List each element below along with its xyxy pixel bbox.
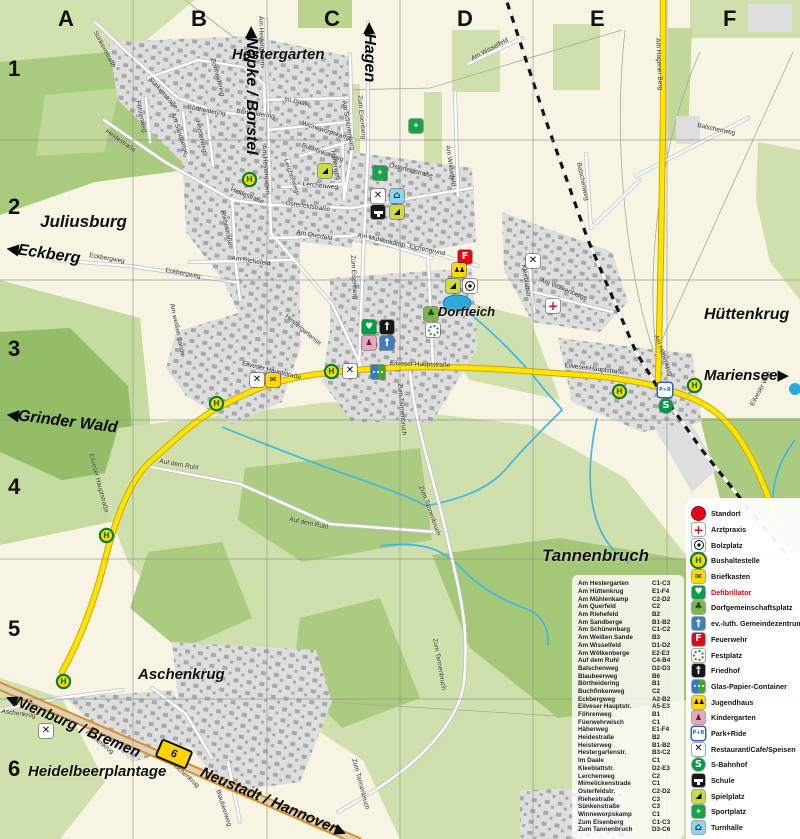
street-index-grid-ref: B1-B2 [652,742,680,749]
street-index-grid-ref: B1-B2 [652,619,680,626]
street-index-grid-ref: C2-D2 [652,596,680,603]
restaurant-icon: ✕ [343,364,357,378]
street-index-name: Am Mühlenkamp [578,596,652,603]
legend-item: FFeuerwehr [692,632,800,648]
street-index-name: Am Schünenbarg [578,626,652,633]
legend-item: HBushaltestelle [692,553,800,569]
street-label: Osterfeldstraße [285,200,330,213]
legend-item: ◢Spielplatz [692,788,800,804]
grid-row-label: 5 [8,616,20,642]
direction-sign-label: Nöpke / Borstel [243,37,260,154]
street-index-name: Heidestraße [578,734,652,741]
grid-column-label: B [191,6,207,32]
street-label: Blaubeerweg [214,789,232,827]
legend-item-label: Turnhalle [711,823,743,832]
street-index-name: Am Wölkenberge [578,650,652,657]
street-index-row: BlaubeerwegB6 [578,672,680,680]
briefkasten-icon: ✉ [266,373,280,387]
street-label: Am Riehefeld [231,255,271,267]
bolzplatz-glyph [694,540,704,550]
glas-container-glyph [698,685,700,687]
street-label: Sünkenstraße [147,76,179,111]
street-index-grid-ref: A5-E3 [652,703,680,710]
street-index-name: Auf dem Ruhl [578,657,652,664]
street-label: Am weißen Sande [168,303,186,356]
street-index-row: Am QuerfeldC2 [578,603,680,611]
street-index-grid-ref: C3 [652,796,680,803]
street-label: Eilveser Hauptstraße [390,360,451,369]
street-index-grid-ref: A2-B2 [652,696,680,703]
sportplatz-icon: ✦ [409,119,423,133]
legend-item-label: Sportplatz [711,807,746,816]
arztpraxis-icon: + [692,523,705,536]
street-index-row: Am WisselfeldD1-D2 [578,642,680,650]
legend-item-label: Friedhof [711,666,740,675]
bushaltestelle-icon: H [244,174,255,185]
street-index-grid-ref: B3 [652,634,680,641]
place-label: Dorfteich [438,304,495,319]
grid-column-label: C [324,6,340,32]
grid-row-label: 4 [8,474,20,500]
street-index-name: Am Hüttenkrug [578,588,652,595]
street-label: Am Wisselfeld [444,145,457,187]
street-label: Heidestraße [229,186,264,206]
street-index-name: Zum Tannenbruch [578,826,652,833]
friedhof-icon: † [380,320,394,334]
grid-row-label: 6 [8,756,20,782]
restaurant-icon: ✕ [692,743,705,756]
gemeindezentrum-icon: † [380,336,394,350]
street-index-name: Blaubeerweg [578,673,652,680]
street-index-name: Balschenweg [578,665,652,672]
street-label: Zum Eisenberg [356,95,367,140]
street-index-row: Am MühlenkampC2-D2 [578,595,680,603]
legend-panel: Standort+ArztpraxisBolzplatzHBushalteste… [686,498,800,839]
turnhalle-icon: ⌂ [692,821,705,834]
legend-item: ⌂Turnhalle [692,820,800,836]
grid-column-label: E [590,6,605,32]
bushaltestelle-icon: H [211,398,222,409]
legend-item-label: S-Bahnhof [711,760,747,769]
street-index-grid-ref: B3-C2 [652,749,680,756]
legend-item-label: Restaurant/Cafe/Speisen [711,745,796,754]
bushaltestelle-icon: H [614,386,625,397]
street-index-name: Lerchenweg [578,773,652,780]
street-index-grid-ref: C1-C3 [652,580,680,587]
festplatz-glyph [428,325,439,336]
street-index-grid-ref: B6 [652,673,680,680]
legend-item: SS-Bahnhof [692,757,800,773]
restaurant-icon: ✕ [39,724,53,738]
restaurant-icon: ✕ [250,373,264,387]
street-index-grid-ref: D2-D3 [652,665,680,672]
street-label: Am Mühlenkamp [357,232,406,249]
street-index-row: Am Weißen SandeB3 [578,634,680,642]
sportplatz-icon: ✦ [373,166,387,180]
gemeindezentrum-icon: † [692,617,705,630]
street-index-grid-ref: C4-B4 [652,657,680,664]
street-index-name: Sünkenstraße [578,803,652,810]
spielplatz-icon: ◢ [446,279,460,293]
bushaltestelle-icon: H [692,554,705,567]
bushaltestelle-icon: H [101,530,112,541]
street-index-grid-ref: C2 [652,773,680,780]
street-index-grid-ref: E1-F4 [652,588,680,595]
street-index-grid-ref: C1-C2 [652,626,680,633]
dorfgemeinschaftsplatz-icon: ♣ [692,601,705,614]
street-index-row: FüerwehrwischC1 [578,718,680,726]
direction-sign-label: Grinder Wald [17,407,118,436]
street-index-name: Riehestraße [578,796,652,803]
s-bahnhof-icon: S [659,399,673,413]
legend-item-label: Arztpraxis [711,525,746,534]
direction-sign-label: Eckberg [17,242,82,268]
street-index-name: Eilveser Hauptstr. [578,703,652,710]
street-index-row: BuchfinkenwegC2 [578,688,680,696]
legend-item-label: Festplatz [711,651,742,660]
street-index-row: Eilveser Hauptstr.A5-E3 [578,703,680,711]
glas-container-icon [371,365,385,379]
feuerwehr-icon: F [458,250,472,264]
bushaltestelle-icon: H [689,380,700,391]
schule-glyph [374,211,383,214]
street-index-grid-ref: D2-E3 [652,765,680,772]
arztpraxis-icon: + [546,299,560,313]
spielplatz-icon: ◢ [318,164,332,178]
direction-sign: ◀Hagen [360,22,380,82]
street-label: Auf dem Ruhl [289,516,329,531]
schule-icon [371,205,385,219]
legend-item-label: Park+Ride [711,729,746,738]
spielplatz-icon: ◢ [390,205,404,219]
street-index-grid-ref: C1 [652,780,680,787]
direction-sign: ◀Grinder Wald [6,404,119,437]
legend-item-label: ev.-luth. Gemeindezentrum [711,619,800,628]
street-index-row: Osterfeldstr.C2-D2 [578,788,680,796]
street-index-grid-ref: C3 [652,803,680,810]
street-label: Zum Tannenbruch [431,638,447,691]
street-index-name: Füerwehrwisch [578,719,652,726]
legend-item-label: Kindergarten [711,713,756,722]
street-index-grid-ref: D3-C6 [652,826,680,833]
street-index-row: Am SchünenbargC1-C2 [578,626,680,634]
street-index-grid-ref: C2 [652,603,680,610]
street-label: Eilveser Hauptstraße [564,362,625,376]
street-label: Balschenweg [575,162,590,201]
legend-item-label: Spielplatz [711,792,745,801]
street-index-grid-ref: C1 [652,719,680,726]
street-label: Am Schünenbarg [340,100,356,151]
street-label: Auf dem Ruhl [159,458,199,472]
legend-item: †ev.-luth. Gemeindezentrum [692,616,800,632]
street-index-grid-ref: B1 [652,680,680,687]
schule-glyph [694,779,703,782]
street-index-row: Am HüttenkrugE1-F4 [578,588,680,596]
jugendhaus-icon: ♟♟ [452,263,466,277]
legend-item: †Friedhof [692,663,800,679]
legend-item: ♣Dorfgemeinschaftsplatz [692,600,800,616]
dorfgemeinschaftsplatz-icon: ♣ [424,307,438,321]
grid-column-label: A [58,6,74,32]
place-label: Hüttenkrug [704,306,789,324]
street-index-row: Zum TannenbruchD3-C6 [578,826,680,834]
street-label: Eckbergweg [89,252,125,265]
street-label: Lerchenweg [302,181,338,191]
grid-row-label: 3 [8,336,20,362]
direction-sign: ◀Eckberg [5,238,82,268]
street-index-row: Im DaaleC1 [578,757,680,765]
direction-sign: ◀Nöpke / Borstel [242,26,262,155]
street-index-row: FöhrenwegB1 [578,711,680,719]
jugendhaus-icon: ♟♟ [692,696,705,709]
street-label: Am Wisselfeld [470,37,510,63]
street-index-grid-ref: E2-E3 [652,650,680,657]
briefkasten-icon: ✉ [692,570,705,583]
legend-item-label: Defibrillator [711,588,751,597]
legend-item: ♟Kindergarten [692,710,800,726]
street-index-name: Kleeblattstr. [578,765,652,772]
kindergarten-icon: ♟ [692,711,705,724]
street-index-row: BörtheideringB1 [578,680,680,688]
street-index-panel: Am HestergartenC1-C3Am HüttenkrugE1-F4Am… [572,575,684,839]
legend-item-label: Briefkasten [711,572,750,581]
street-index-name: Zum Eisenberg [578,819,652,826]
street-index-grid-ref: C1 [652,811,680,818]
direction-sign-label: Mariensee [704,367,777,384]
place-label: Heidelbeerplantage [28,763,166,780]
legend-item: ✉Briefkasten [692,569,800,585]
street-index-row: RiehestraßeC3 [578,795,680,803]
street-index-name: Heisterweg [578,742,652,749]
kindergarten-icon: ♟ [362,336,376,350]
left-arrow-icon: ◀ [243,26,260,37]
left-arrow-icon: ◀ [361,22,378,33]
street-index-grid-ref: C2-D2 [652,788,680,795]
right-arrow-icon: ▶ [777,367,788,384]
street-index-name: Börtheidering [578,680,652,687]
legend-item: Festplatz [692,647,800,663]
street-index-grid-ref: C2 [652,688,680,695]
street-index-row: Auf dem RuhlC4-B4 [578,657,680,665]
direction-sign-label: Nienburg / Bremen [13,693,143,761]
festplatz-glyph [693,650,704,661]
festplatz-icon [692,649,705,662]
street-index-name: Mimelickenstrade [578,780,652,787]
street-index-row: Am SandbergeB1-B2 [578,618,680,626]
festplatz-icon [426,323,440,337]
legend-item-label: Standort [711,509,741,518]
street-index-name: Föhrenweg [578,711,652,718]
legend-item-label: Dorfgemeinschaftsplatz [711,603,792,612]
street-index-grid-ref: D1-D2 [652,642,680,649]
legend-item: ♥Defibrillator [692,584,800,600]
direction-sign-label: Hagen [361,33,378,82]
schule-icon [692,774,705,787]
street-index-row: HäherwegE1-F4 [578,726,680,734]
street-index-row: Am RiehefeldB2 [578,611,680,619]
street-index-row: Am WölkenbergeE2-E3 [578,649,680,657]
glas-container-glyph [377,371,379,373]
street-index-row: HeisterwegB1-B2 [578,741,680,749]
street-label: Eichengrund [409,243,446,257]
legend-item: Glas-Papier-Container [692,679,800,695]
street-index-row: Am HestergartenC1-C3 [578,580,680,588]
street-label: Heisterweg [194,120,208,153]
street-index-row: WinneworpskampC1 [578,811,680,819]
street-index-name: Am Hestergarten [578,580,652,587]
street-label: Am Hüttenkrug [652,334,673,377]
street-index-grid-ref: B2 [652,611,680,618]
street-index-grid-ref: C1-C3 [652,819,680,826]
legend-item: +Arztpraxis [692,522,800,538]
street-index-grid-ref: B1 [652,711,680,718]
defibrillator-icon: ♥ [362,320,376,334]
street-label: Börtheidering [209,58,226,97]
street-label: Am Hagener Berg [654,38,664,90]
legend-item: Standort [692,506,800,522]
street-index-grid-ref: E1-F4 [652,726,680,733]
feuerwehr-icon: F [692,633,705,646]
street-index-row: MimelickenstradeC1 [578,780,680,788]
turnhalle-icon: ⌂ [390,189,404,203]
street-label: Kleeblattstr. [520,264,532,299]
street-index-row: Hestergartenstr.B3-C2 [578,749,680,757]
legend-item: Bolzplatz [692,537,800,553]
street-index-name: Im Daale [578,757,652,764]
direction-sign: ◀Nienburg / Bremen [3,688,143,761]
street-label: Sünkenstraße [92,30,117,69]
bushaltestelle-icon: H [326,366,337,377]
park-ride-icon: P+R [658,383,672,397]
s-bahnhof-icon: S [692,758,705,771]
friedhof-icon: † [692,664,705,677]
legend-item-label: Glas-Papier-Container [711,682,787,691]
grid-column-label: F [723,6,736,32]
direction-sign: Mariensee▶ [704,366,788,384]
bolzplatz-icon [692,539,705,552]
street-index-row: SünkenstraßeC3 [578,803,680,811]
sportplatz-icon: ✦ [692,805,705,818]
street-label: Föhrenweg [134,100,148,133]
standort-icon [692,507,705,520]
street-label: Zum Eisenberg [349,255,358,299]
park-ride-icon: P+R [692,727,705,740]
legend-item-label: Bushaltestelle [711,556,760,565]
street-label: Riehestraße [219,210,233,246]
street-index-row: LerchenwegC2 [578,772,680,780]
street-index-name: Am Weißen Sande [578,634,652,641]
street-label: Am Querfeld [296,229,333,242]
legend-item: ✦Sportplatz [692,804,800,820]
street-label: Heidestraße [104,128,137,154]
street-label: Zum Tannenbruch [417,485,441,537]
street-label: Börtheidering [187,104,226,118]
street-label: Lerchenweg [282,158,300,194]
spielplatz-icon: ◢ [692,790,705,803]
street-index-name: Häherweg [578,726,652,733]
street-index-name: Am Riehefeld [578,611,652,618]
street-index-row: HeidestraßeB2 [578,734,680,742]
street-index-row: Zum EisenbergC1-C3 [578,818,680,826]
street-label: Eilveser Hauptstraße [87,453,109,513]
street-label: Balschenweg [697,122,736,137]
street-index-name: Buchfinkenweg [578,688,652,695]
street-index-name: Am Sandberge [578,619,652,626]
street-label: Buchfinkenweg [301,142,345,164]
street-label: Zum Tannenbruch [350,758,370,810]
place-label: Aschenkrug [138,666,225,683]
place-label: Tannenbruch [542,546,649,566]
street-index-name: Osterfeldstr. [578,788,652,795]
street-index-row: EckbergwegA2-B2 [578,695,680,703]
grid-row-label: 1 [8,56,20,82]
grid-row-label: 2 [8,194,20,220]
street-index-row: Kleeblattstr.D2-E3 [578,765,680,773]
street-label: Eckbergweg [165,267,201,280]
grid-column-label: D [457,6,473,32]
bolzplatz-icon [463,279,477,293]
street-index-grid-ref: C1 [652,757,680,764]
street-index-name: Winneworpskamp [578,811,652,818]
street-index-name: Eckbergweg [578,696,652,703]
street-index-grid-ref: B2 [652,734,680,741]
legend-item-label: Feuerwehr [711,635,747,644]
street-label: Am Sandberge [169,112,189,155]
village-map: ABCDEF123456SünkenstraßeSünkenstraßeFöhr… [0,0,800,839]
legend-item: Schule [692,773,800,789]
glas-container-icon [692,680,705,693]
legend-item: P+RPark+Ride [692,726,800,742]
street-label: Im Daale [284,96,311,108]
street-index-row: BalschenwegD2-D3 [578,665,680,673]
restaurant-icon: ✕ [526,254,540,268]
restaurant-icon: ✕ [371,189,385,203]
place-label: Juliusburg [40,212,127,232]
legend-item: ♟♟Jugendhaus [692,694,800,710]
defibrillator-icon: ♥ [692,586,705,599]
street-label: Hestergartenstr. [284,313,324,348]
street-label: Zum Tannenbruch [396,383,408,436]
bolzplatz-glyph [465,281,475,291]
legend-item-label: Jugendhaus [711,698,753,707]
legend-item-label: Bolzplatz [711,541,743,550]
street-index-name: Am Querfeld [578,603,652,610]
street-index-name: Am Wisselfeld [578,642,652,649]
legend-item-label: Schule [711,776,735,785]
legend-item: ✕Restaurant/Cafe/Speisen [692,741,800,757]
bushaltestelle-icon: H [58,676,69,687]
street-index-name: Hestergartenstr. [578,749,652,756]
street-label: Osterfeldstraße [388,162,433,180]
